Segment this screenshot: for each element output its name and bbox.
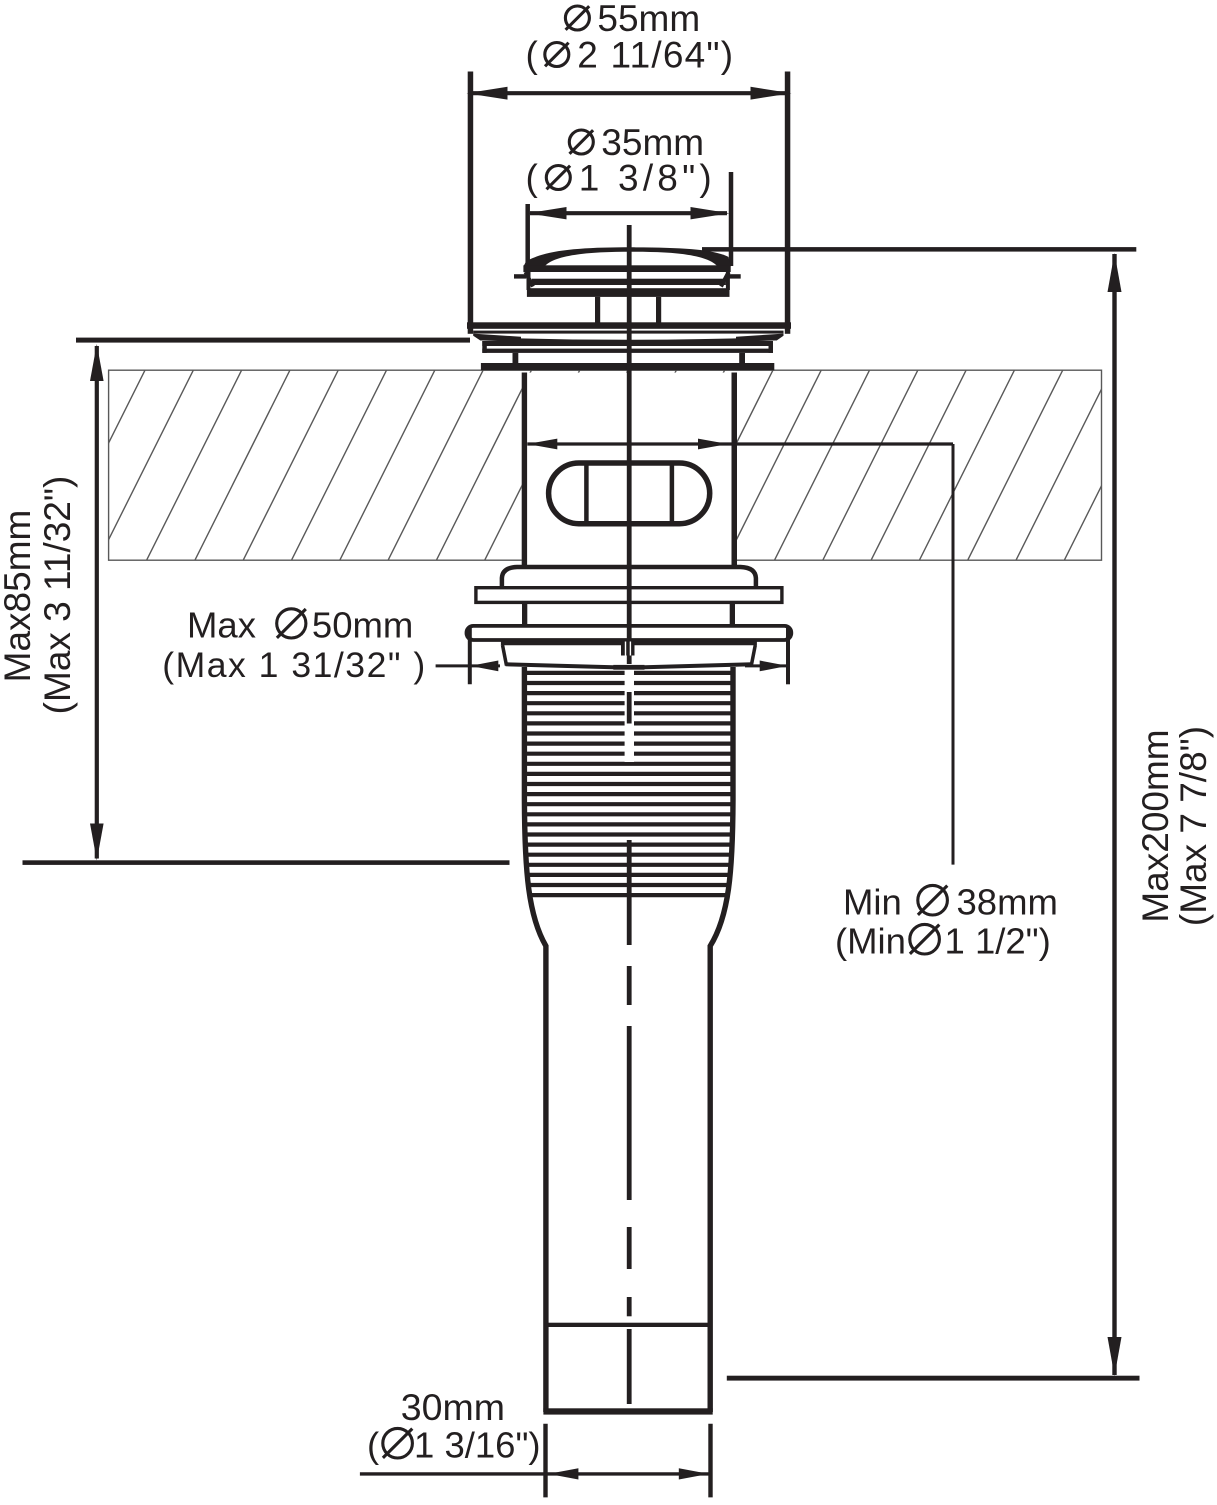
svg-text:(Min: (Min (835, 921, 906, 962)
svg-text:(: ( (526, 35, 539, 76)
svg-text:38mm: 38mm (957, 882, 1058, 923)
svg-text:30mm: 30mm (401, 1386, 505, 1428)
svg-text:(Max 7 7/8"): (Max 7 7/8") (1173, 726, 1214, 926)
svg-text:Min: Min (843, 882, 902, 923)
svg-text:Max: Max (187, 605, 256, 646)
svg-text:1 1/2"): 1 1/2") (945, 921, 1051, 962)
svg-text:50mm: 50mm (312, 605, 413, 646)
svg-text:2 11/64"): 2 11/64") (577, 35, 734, 76)
svg-text:55mm: 55mm (597, 0, 700, 39)
svg-text:1 3/8"): 1 3/8") (579, 158, 716, 199)
svg-text:Max200mm: Max200mm (1135, 729, 1176, 922)
svg-text:(Max 3 11/32"): (Max 3 11/32") (37, 476, 78, 715)
svg-text:Max85mm: Max85mm (0, 510, 38, 683)
svg-text:(Max 1 31/32" ): (Max 1 31/32" ) (162, 645, 427, 685)
svg-text:(: ( (367, 1425, 379, 1466)
svg-text:(: ( (526, 158, 539, 199)
svg-text:1 3/16"): 1 3/16") (414, 1425, 541, 1466)
